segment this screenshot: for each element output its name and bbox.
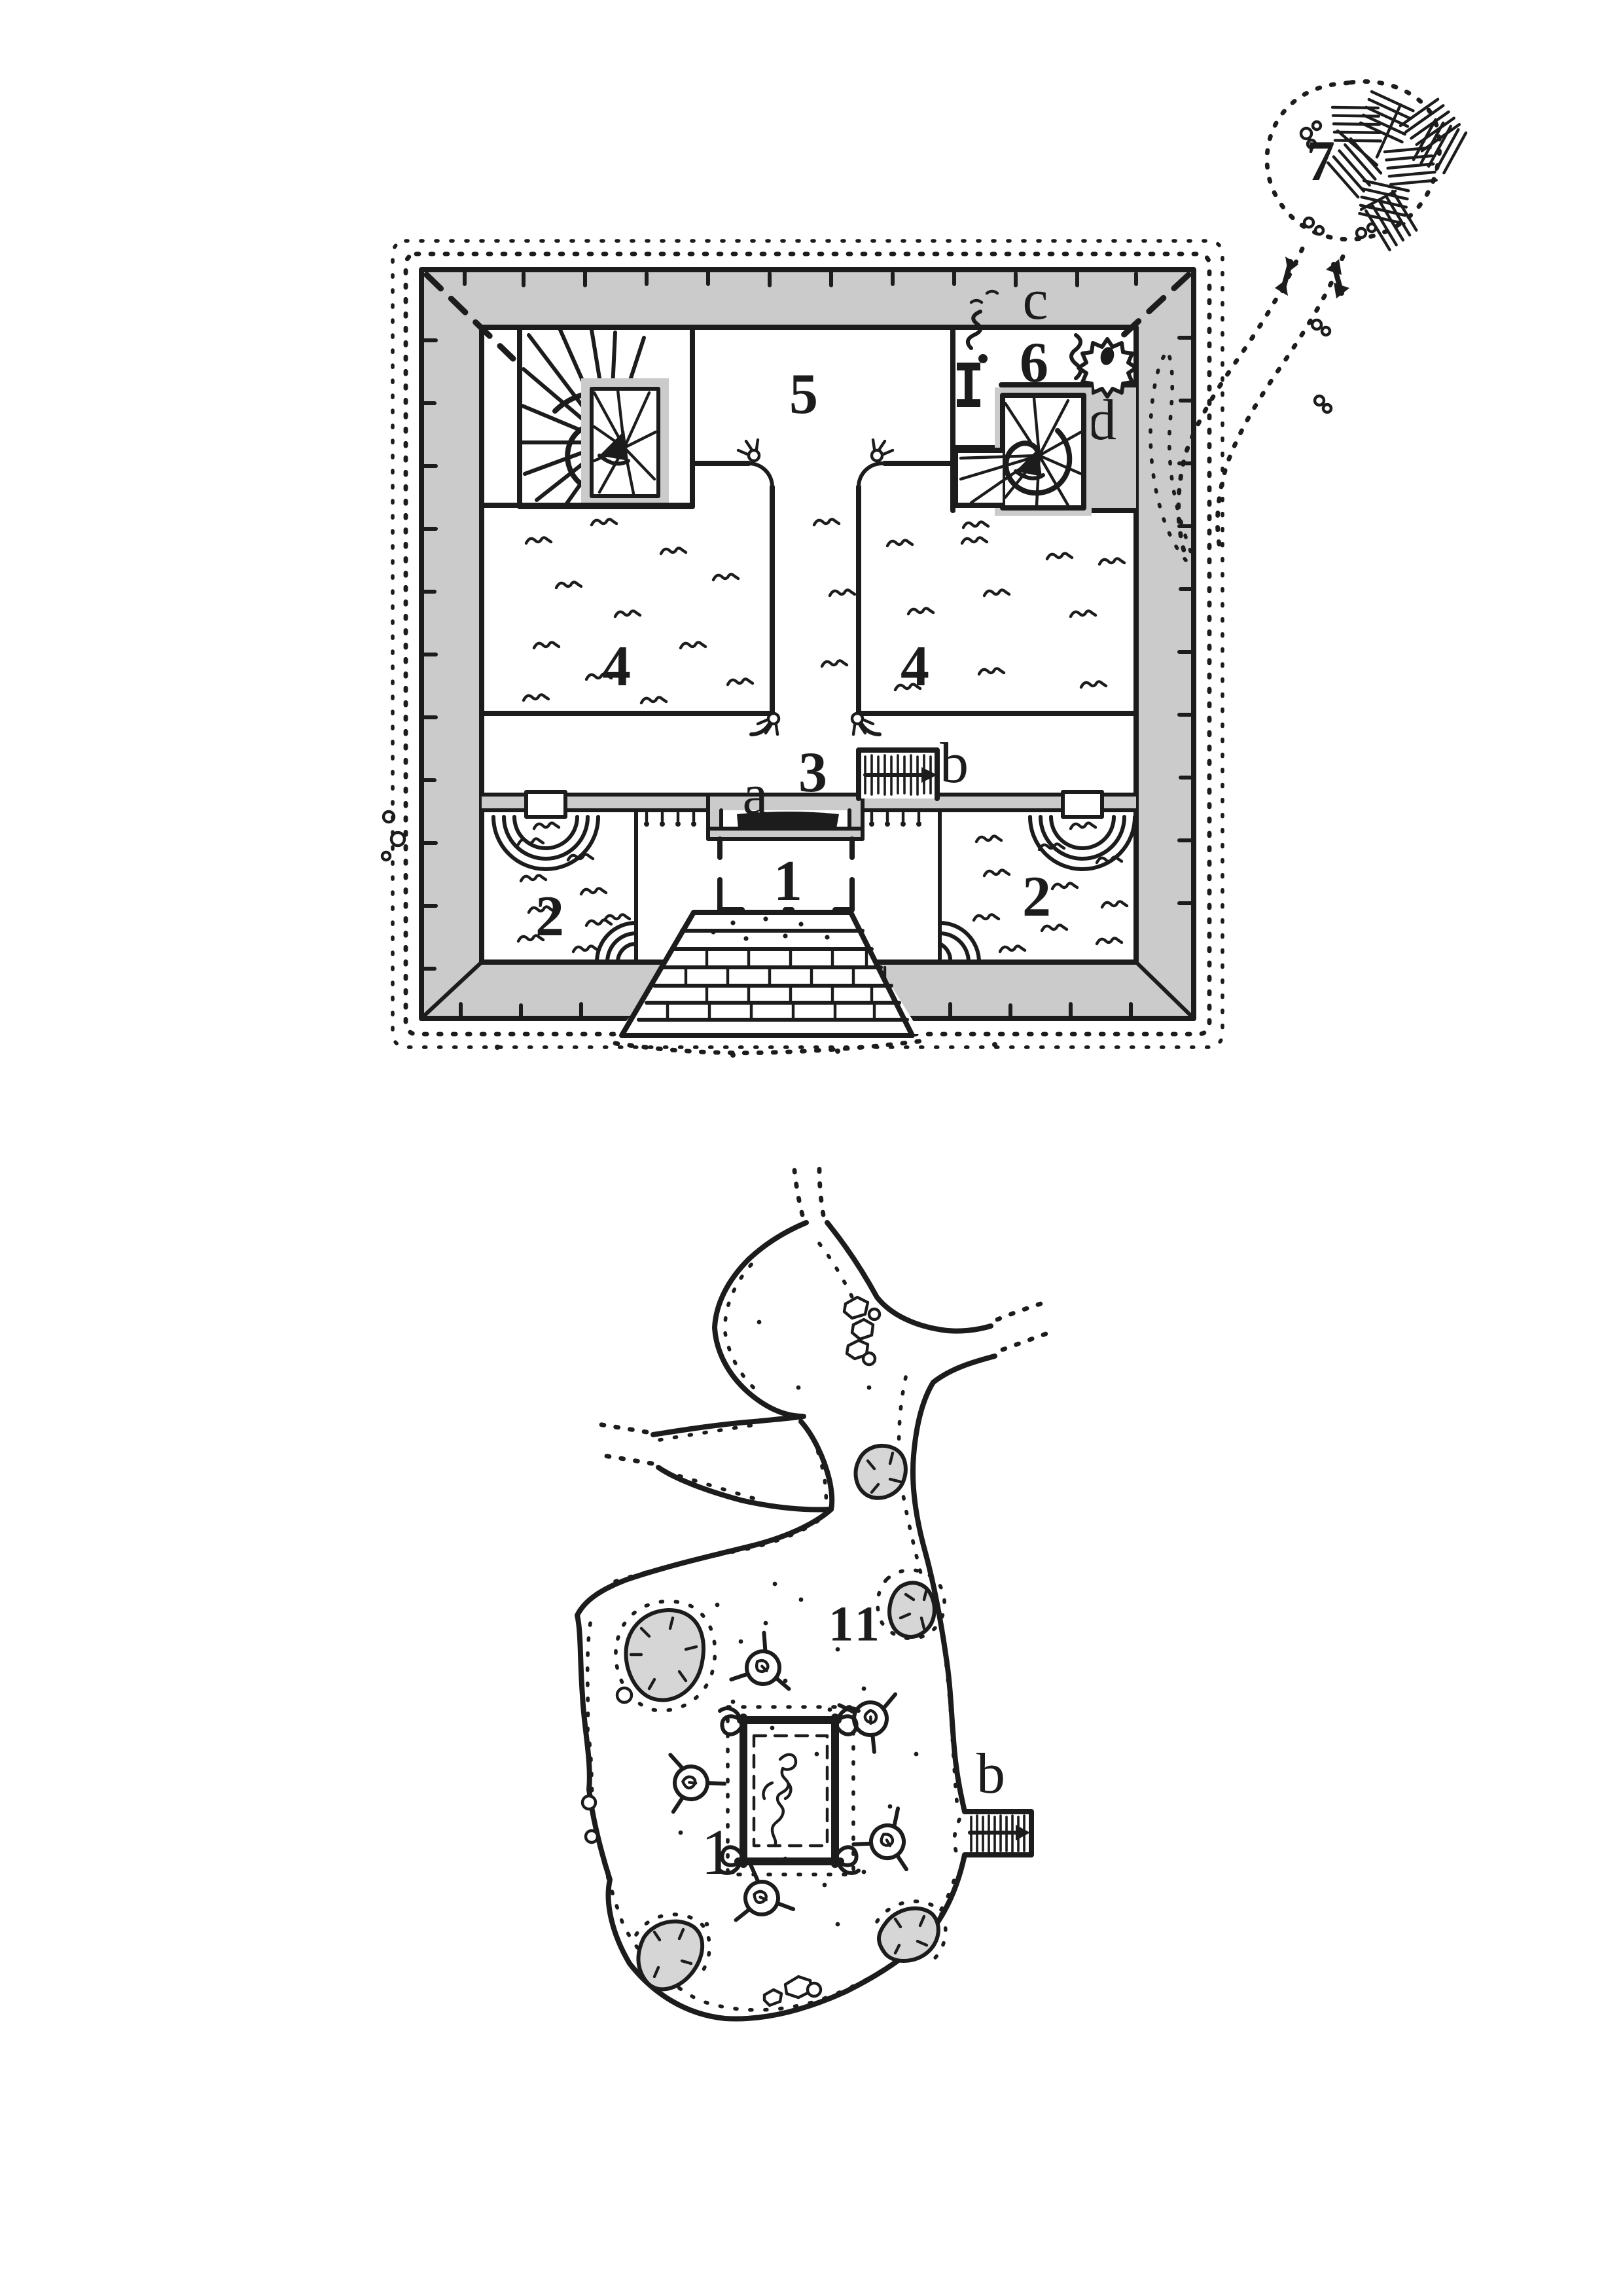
passage-continuations: [598, 1169, 1046, 1463]
room-label-4-left: 4: [602, 635, 631, 698]
room-label-6: 6: [1020, 331, 1048, 395]
trail-edge: [1179, 249, 1302, 558]
room-label-1: 1: [774, 850, 802, 913]
stair-arrow: [1016, 1825, 1030, 1840]
feature-label-b-upper: b: [940, 732, 969, 795]
deadfall-sticks: [1323, 83, 1474, 253]
sketched-figure: [764, 1755, 796, 1846]
feature-label-rug: 1: [701, 1816, 734, 1888]
stair-b-upper: b: [859, 732, 969, 798]
dungeon-map-page: 5 6 c d: [0, 0, 1623, 2296]
spiral-stair-northwest: [520, 327, 692, 507]
stair-b-lower: b: [970, 1742, 1030, 1852]
two-way-arrows: [1275, 257, 1349, 298]
lower-map-cavern: 1 b 11: [577, 1169, 1046, 2019]
feature-label-d: d: [1088, 389, 1116, 452]
feature-label-c: c: [1022, 268, 1048, 332]
feature-label-b-lower: b: [976, 1742, 1005, 1806]
room-label-7: 7: [1306, 130, 1335, 193]
rug-with-figure: 1: [701, 1708, 859, 1888]
upper-map-temple: 5 6 c d: [382, 241, 1222, 1058]
altar-icon: [957, 354, 988, 407]
room-label-2-left: 2: [535, 885, 564, 948]
room-label-11: 11: [829, 1597, 883, 1652]
corner-basin-right: [940, 923, 979, 962]
cave-7-and-trail: 7: [1150, 81, 1474, 563]
corridor-3: 3 a b: [482, 732, 1136, 839]
room-label-3: 3: [798, 741, 827, 804]
room-label-5: 5: [789, 363, 818, 426]
room-label-2-right: 2: [1022, 865, 1051, 929]
corner-basin-left: [597, 923, 636, 962]
curtain-squiggle: [1071, 335, 1080, 378]
feature-label-a: a: [742, 763, 768, 827]
